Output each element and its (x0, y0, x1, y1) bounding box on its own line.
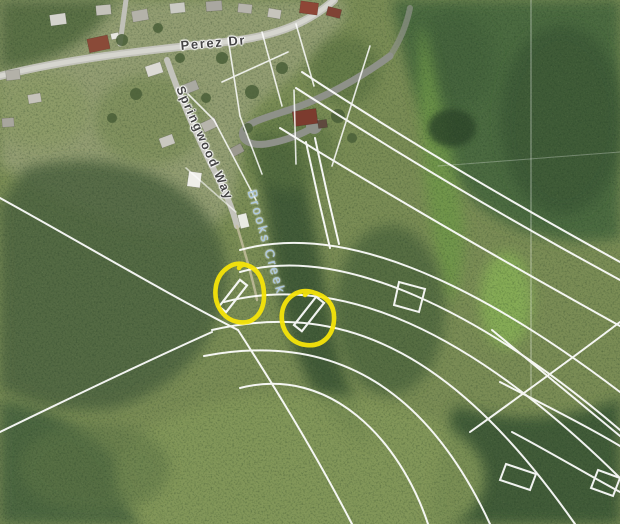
satellite-imagery (0, 0, 620, 524)
map-viewport[interactable]: Perez Dr Springwood Way Brooks Creek (0, 0, 620, 524)
